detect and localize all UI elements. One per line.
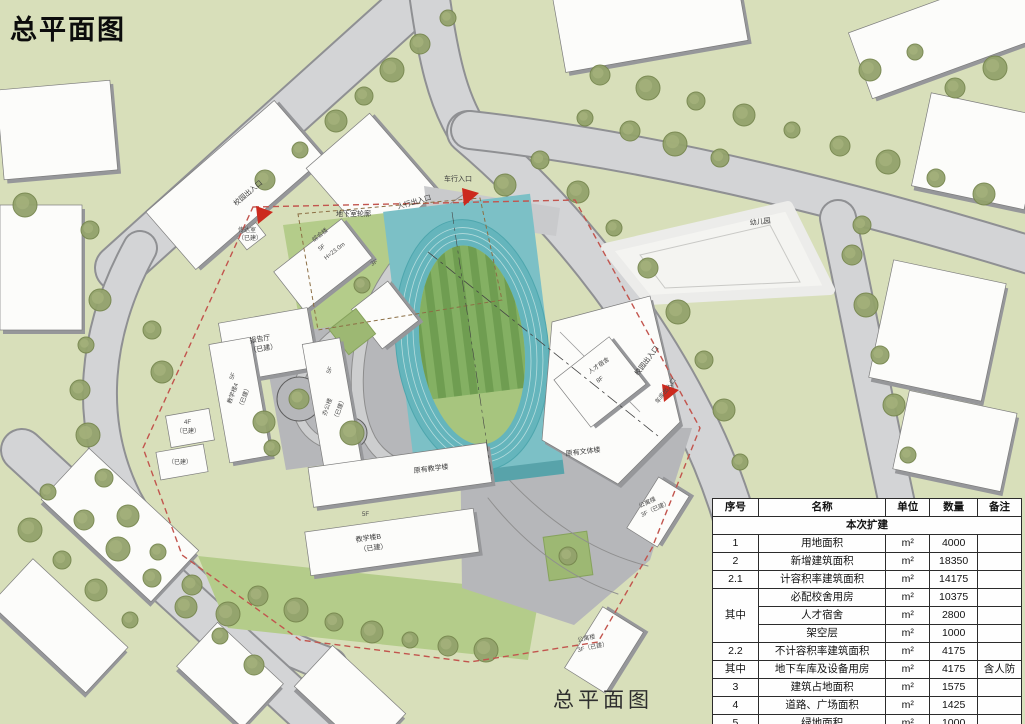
tree-icon — [567, 181, 589, 203]
tree-icon — [733, 104, 755, 126]
tree-icon — [216, 602, 240, 626]
tree-icon — [410, 34, 430, 54]
cell-note — [978, 643, 1022, 661]
tree-icon — [784, 122, 800, 138]
cell-unit: m² — [886, 643, 930, 661]
basement-outline-label: 地下室轮廓 — [336, 209, 371, 218]
tree-icon — [182, 575, 202, 595]
cell-unit: m² — [886, 715, 930, 724]
tree-icon — [151, 361, 173, 383]
drawing-caption: 总平面图 — [553, 684, 653, 714]
cell-no: 1 — [713, 535, 759, 553]
cell-name: 用地面积 — [758, 535, 885, 553]
cell-note — [978, 535, 1022, 553]
cell-no: 4 — [713, 697, 759, 715]
tree-icon — [143, 321, 161, 339]
cell-unit: m² — [886, 535, 930, 553]
floor-5f-label: 5F — [362, 512, 369, 518]
cell-note — [978, 625, 1022, 643]
cell-qty: 2800 — [930, 607, 978, 625]
cell-name: 计容积率建筑面积 — [758, 571, 885, 589]
table-row: 其中地下车库及设备用房m²4175含人防 — [713, 661, 1022, 679]
cell-qty: 4175 — [930, 643, 978, 661]
tree-icon — [830, 136, 850, 156]
cell-no: 2.1 — [713, 571, 759, 589]
table-row: 架空层m²1000 — [713, 625, 1022, 643]
cell-name: 新增建筑面积 — [758, 553, 885, 571]
cell-no: 5 — [713, 715, 759, 724]
tree-icon — [361, 621, 383, 643]
tree-icon — [264, 440, 280, 456]
cell-name: 建筑占地面积 — [758, 679, 885, 697]
table-row: 2新增建筑面积m²18350 — [713, 553, 1022, 571]
tree-icon — [53, 551, 71, 569]
tree-icon — [620, 121, 640, 141]
gatehouse-status-label: （已建） — [238, 234, 262, 242]
cell-note — [978, 589, 1022, 607]
cell-qty: 1575 — [930, 679, 978, 697]
tree-icon — [871, 346, 889, 364]
tree-icon — [638, 258, 658, 278]
tree-icon — [40, 484, 56, 500]
cell-unit: m² — [886, 679, 930, 697]
tree-icon — [78, 337, 94, 353]
area-statistics-table: 序号 名称 单位 数量 备注 本次扩建 1用地面积m²4000 2新增建筑面积m… — [712, 498, 1022, 724]
cell-name: 道路、广场面积 — [758, 697, 885, 715]
cell-unit: m² — [886, 553, 930, 571]
tree-icon — [494, 174, 516, 196]
cell-note — [978, 571, 1022, 589]
tree-icon — [883, 394, 905, 416]
cell-qty: 1425 — [930, 697, 978, 715]
page-title: 总平面图 — [10, 8, 126, 47]
cell-note — [978, 697, 1022, 715]
cell-no: 其中 — [713, 661, 759, 679]
tree-icon — [945, 78, 965, 98]
vehicle-entrance-label: 车行入口 — [444, 174, 472, 183]
cell-unit: m² — [886, 661, 930, 679]
tree-icon — [973, 183, 995, 205]
table-row: 1用地面积m²4000 — [713, 535, 1022, 553]
col-name: 名称 — [758, 499, 885, 517]
tree-icon — [900, 447, 916, 463]
cell-no: 2.2 — [713, 643, 759, 661]
built-label: （已建） — [176, 427, 200, 435]
cell-no: 3 — [713, 679, 759, 697]
tree-icon — [76, 423, 100, 447]
cell-unit: m² — [886, 589, 930, 607]
tree-icon — [289, 389, 309, 409]
cell-unit: m² — [886, 607, 930, 625]
tree-icon — [95, 469, 113, 487]
cell-name: 不计容积率建筑面积 — [758, 643, 885, 661]
cell-no: 2 — [713, 553, 759, 571]
tree-icon — [117, 505, 139, 527]
tree-icon — [711, 149, 729, 167]
tree-icon — [859, 59, 881, 81]
cell-unit: m² — [886, 571, 930, 589]
tree-icon — [253, 411, 275, 433]
cell-name: 地下车库及设备用房 — [758, 661, 885, 679]
tree-icon — [695, 351, 713, 369]
table-row: 其中必配校舍用房m²10375 — [713, 589, 1022, 607]
site-plan-sheet: 车行入口 人行出入口 校园出入口 校园出入口 车库出入口 地下室轮廓 传达室 （… — [0, 0, 1025, 724]
building-small-west-1 — [166, 408, 215, 447]
cell-note: 含人防 — [978, 661, 1022, 679]
tree-icon — [636, 76, 660, 100]
cell-qty: 14175 — [930, 571, 978, 589]
tree-icon — [687, 92, 705, 110]
cell-note — [978, 553, 1022, 571]
table-row: 人才宿舍m²2800 — [713, 607, 1022, 625]
tree-icon — [983, 56, 1007, 80]
tree-icon — [876, 150, 900, 174]
tree-icon — [122, 612, 138, 628]
cell-name: 绿地面积 — [758, 715, 885, 724]
cell-qty: 1000 — [930, 625, 978, 643]
tree-icon — [559, 547, 577, 565]
tree-icon — [143, 569, 161, 587]
kindergarten-parcel — [606, 206, 830, 300]
tree-icon — [85, 579, 107, 601]
floor-4f-label: 4F — [184, 420, 191, 426]
tree-icon — [663, 132, 687, 156]
tree-icon — [606, 220, 622, 236]
tree-icon — [244, 655, 264, 675]
tree-icon — [354, 277, 370, 293]
cell-note — [978, 607, 1022, 625]
tree-icon — [150, 544, 166, 560]
tree-icon — [70, 380, 90, 400]
built-label: （已建） — [168, 458, 192, 466]
tree-icon — [325, 613, 343, 631]
tree-icon — [81, 221, 99, 239]
tree-icon — [842, 245, 862, 265]
table-row: 5绿地面积m²1000 — [713, 715, 1022, 724]
tree-icon — [340, 421, 364, 445]
table-row: 2.2不计容积率建筑面积m²4175 — [713, 643, 1022, 661]
tree-icon — [732, 454, 748, 470]
col-qty: 数量 — [930, 499, 978, 517]
cell-qty: 18350 — [930, 553, 978, 571]
tree-icon — [13, 193, 37, 217]
tree-icon — [355, 87, 373, 105]
tree-icon — [854, 293, 878, 317]
cell-name: 架空层 — [758, 625, 885, 643]
section-title: 本次扩建 — [713, 517, 1022, 535]
tree-icon — [175, 596, 197, 618]
table-row: 3建筑占地面积m²1575 — [713, 679, 1022, 697]
tree-icon — [106, 537, 130, 561]
tree-icon — [440, 10, 456, 26]
tree-icon — [531, 151, 549, 169]
tree-icon — [284, 598, 308, 622]
tree-icon — [590, 65, 610, 85]
col-note: 备注 — [978, 499, 1022, 517]
tree-icon — [853, 216, 871, 234]
table-row: 4道路、广场面积m²1425 — [713, 697, 1022, 715]
tree-icon — [89, 289, 111, 311]
tree-icon — [438, 636, 458, 656]
tree-icon — [577, 110, 593, 126]
cell-name: 必配校舍用房 — [758, 589, 885, 607]
cell-qty: 4000 — [930, 535, 978, 553]
cell-qty: 1000 — [930, 715, 978, 724]
tree-icon — [248, 586, 268, 606]
tree-icon — [927, 169, 945, 187]
tree-icon — [18, 518, 42, 542]
cell-qty: 4175 — [930, 661, 978, 679]
tree-icon — [907, 44, 923, 60]
col-unit: 单位 — [886, 499, 930, 517]
tree-icon — [292, 142, 308, 158]
cell-note — [978, 715, 1022, 724]
cell-note — [978, 679, 1022, 697]
tree-icon — [666, 300, 690, 324]
cell-name: 人才宿舍 — [758, 607, 885, 625]
table-row: 2.1计容积率建筑面积m²14175 — [713, 571, 1022, 589]
gatehouse-label: 传达室 — [238, 226, 256, 234]
col-no: 序号 — [713, 499, 759, 517]
tree-icon — [74, 510, 94, 530]
cell-qty: 10375 — [930, 589, 978, 607]
tree-icon — [402, 632, 418, 648]
building-teaching-b — [305, 508, 483, 580]
tree-icon — [713, 399, 735, 421]
tree-icon — [212, 628, 228, 644]
table-section-row: 本次扩建 — [713, 517, 1022, 535]
tree-icon — [325, 110, 347, 132]
table-header-row: 序号 名称 单位 数量 备注 — [713, 499, 1022, 517]
cell-unit: m² — [886, 697, 930, 715]
cell-unit: m² — [886, 625, 930, 643]
tree-icon — [380, 58, 404, 82]
cell-no: 其中 — [713, 589, 759, 643]
